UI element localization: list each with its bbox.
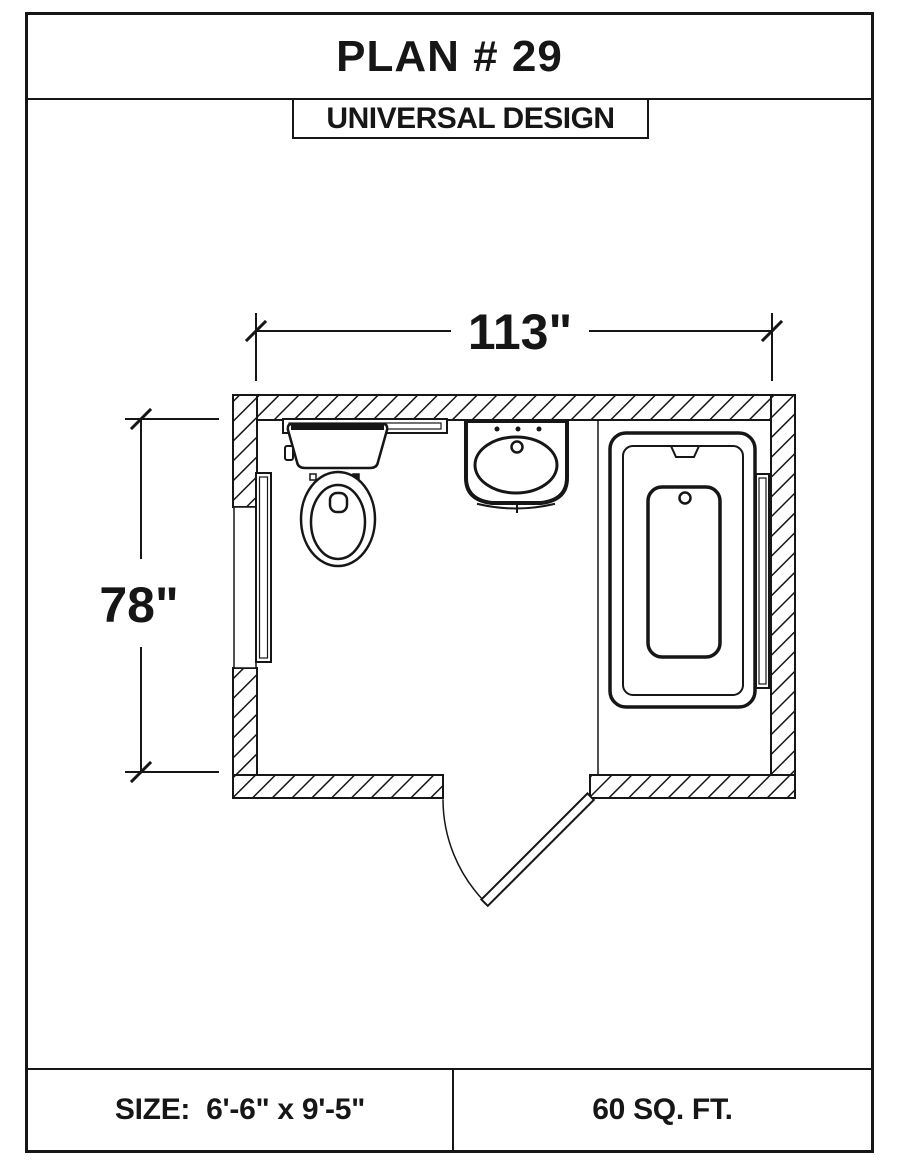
sink-body — [466, 421, 567, 503]
dimension-height: 78" — [99, 410, 218, 781]
toilet-hinge-left — [310, 474, 316, 480]
sink-faucet-center — [516, 427, 521, 432]
grab-bar-right-wall — [756, 474, 769, 688]
wall-right — [771, 395, 795, 798]
floor-plan-drawing: 113" 78" — [0, 0, 900, 1165]
toilet-tank — [288, 424, 387, 468]
universal-design-badge: UNIVERSAL DESIGN — [292, 98, 649, 139]
sink-faucet-right — [537, 427, 542, 432]
tub-drain — [680, 493, 691, 504]
door-swing-arc — [443, 800, 484, 901]
title-block: SIZE: 6'-6" x 9'-5" 60 SQ. FT. — [28, 1068, 871, 1150]
door-leaf — [481, 793, 593, 905]
wall-left-upper — [233, 395, 257, 507]
toilet — [285, 424, 387, 566]
grab-bar-left-wall — [256, 473, 271, 662]
tub-faucet — [671, 446, 699, 457]
tub-outer-rim — [610, 433, 755, 707]
sink-faucet-left — [495, 427, 500, 432]
sink — [466, 421, 567, 512]
entry-door — [443, 793, 594, 905]
wall-left-recess — [234, 507, 256, 668]
area-label: 60 SQ. FT. — [454, 1070, 871, 1150]
width-dimension-label: 113" — [468, 304, 572, 360]
height-dimension-label: 78" — [99, 577, 178, 633]
dimension-width: 113" — [247, 304, 781, 380]
wall-top — [233, 395, 795, 420]
sink-drain — [512, 442, 523, 453]
size-label: SIZE: 6'-6" x 9'-5" — [28, 1070, 454, 1150]
toilet-flush-hole — [330, 493, 347, 512]
toilet-flush-handle — [285, 446, 293, 460]
wall-bottom-right — [590, 775, 795, 798]
plan-sheet: PLAN # 29 UNIVERSAL DESIGN SIZE: 6'-6" x… — [0, 0, 900, 1165]
bathtub — [610, 433, 755, 707]
wall-bottom-left — [233, 775, 443, 798]
